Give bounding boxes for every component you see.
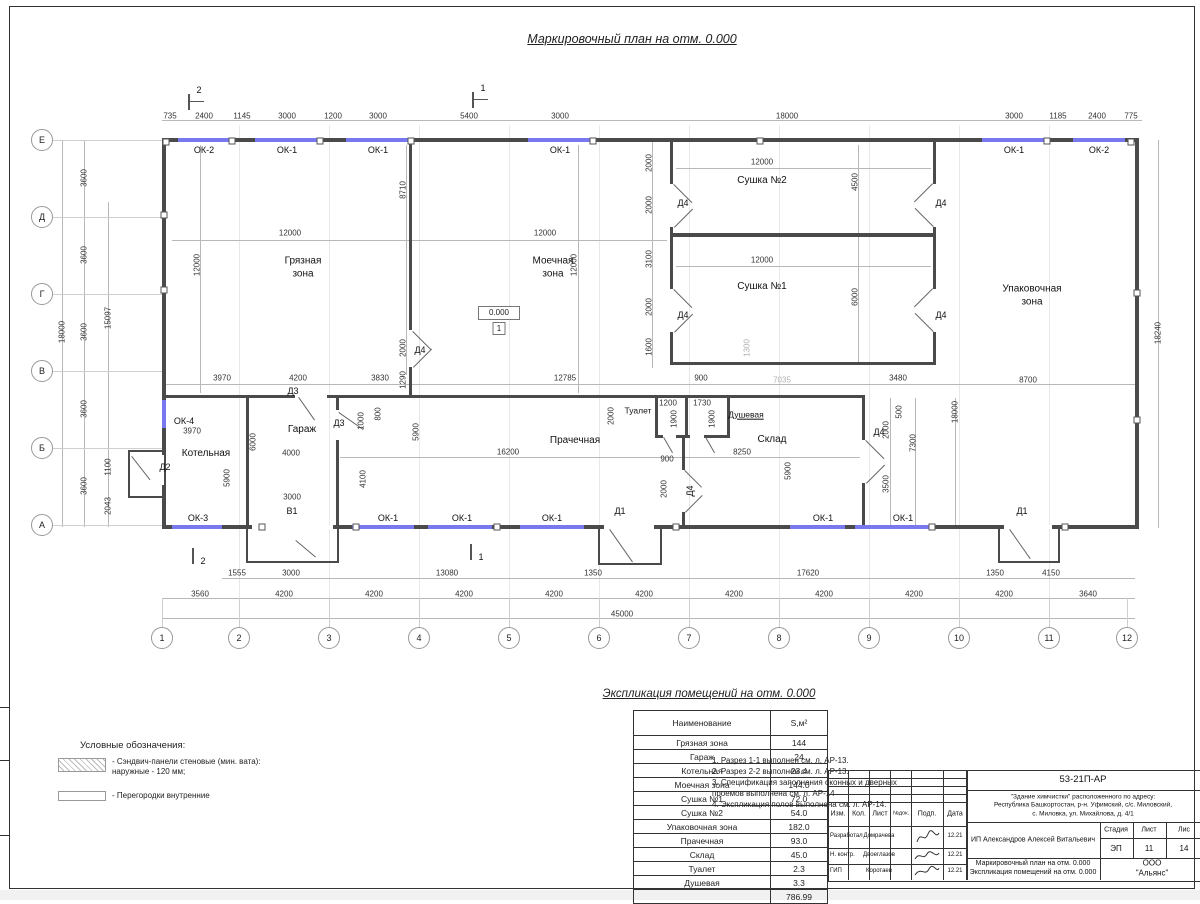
total-area: 786.99 (771, 890, 828, 904)
section-mark-2: 2 (196, 85, 201, 95)
wall-corridor (682, 512, 685, 525)
dim-label: 12000 (534, 229, 556, 238)
dim-label: 4000 (282, 449, 300, 458)
table-total-row: 786.99 (634, 890, 828, 904)
axis-tick (1127, 598, 1128, 628)
axis-tick (599, 598, 600, 628)
wall-interior (409, 367, 412, 395)
wall-interior (933, 142, 936, 184)
door-label: Д1 (1016, 506, 1027, 516)
window-label: ОК-4 (174, 416, 194, 426)
axis-bubble-bottom: 9 (858, 627, 880, 649)
stamp-line (828, 864, 967, 865)
wall-outer-right (1135, 138, 1139, 529)
axis-tick (959, 598, 960, 628)
stamp-name-gip: Коротаев (866, 868, 892, 876)
frame-left-divider (0, 707, 9, 708)
dim-label: 1900 (670, 410, 679, 428)
table-row: Прачечная93.0 (634, 834, 828, 848)
room-area: 93.0 (771, 834, 828, 848)
stamp-col-data: Дата (947, 809, 963, 818)
wall-garage (336, 440, 339, 525)
dim-line-bottom1 (222, 578, 1135, 579)
dim-label: 3000 (369, 112, 387, 121)
door-label: Д1 (614, 506, 625, 516)
signature (913, 864, 941, 878)
dim-line-inner (676, 168, 931, 169)
axis-tick (162, 598, 163, 628)
window-label: ОК-1 (813, 513, 833, 523)
stamp-name-ncontrol: Двоеглазов (863, 852, 895, 860)
dim-label: 1145 (233, 112, 250, 121)
axis-tick (689, 598, 690, 628)
door-label: Д4 (677, 198, 688, 208)
dim-label: 45000 (611, 610, 633, 619)
table-row: Грязная зона144 (634, 736, 828, 750)
axis-tick (1049, 598, 1050, 628)
dim-label: 3500 (882, 475, 891, 493)
dim-line-left3 (108, 202, 109, 527)
column-marker (229, 138, 236, 145)
axis-bubble-bottom: 12 (1116, 627, 1138, 649)
window-ok1 (520, 525, 584, 529)
signature (915, 828, 941, 846)
column-marker (161, 212, 168, 219)
dim-label: 12000 (279, 229, 301, 238)
window-ok1 (855, 525, 930, 529)
door-label: Д4 (935, 310, 946, 320)
window-label: ОК-1 (368, 145, 388, 155)
stamp-line (966, 790, 1200, 791)
section-mark-line (470, 544, 472, 560)
floor-type-mark: 1 (493, 322, 506, 335)
window-ok2 (1073, 138, 1125, 142)
dim-label: 7300 (909, 434, 918, 452)
stamp-date-gip: 12.21 (947, 868, 962, 876)
stage-label: Стадия (1104, 825, 1128, 834)
dim-label: 1600 (645, 338, 654, 356)
signature (913, 850, 941, 862)
axis-bubble-left: Е (31, 129, 53, 151)
axis-tick (779, 598, 780, 628)
dim-label: 3560 (191, 590, 209, 599)
dim-line-inner (340, 457, 860, 458)
window-label: ОК-1 (277, 145, 297, 155)
dim-label: 900 (660, 455, 673, 464)
column-marker (590, 138, 597, 145)
room-label-washing-zone: Моечная зона (533, 256, 574, 281)
room-name: Грязная зона (634, 736, 771, 750)
axis-tick (329, 598, 330, 628)
axis-bubble-bottom: 11 (1038, 627, 1060, 649)
door-label: Д4 (685, 485, 695, 496)
axis-bubble-bottom: 8 (768, 627, 790, 649)
stamp-col-podp: Подп. (918, 809, 937, 818)
room-label-drying1: Сушка №1 (737, 281, 786, 294)
dim-label: 18000 (776, 112, 798, 121)
garage-porch (246, 529, 339, 563)
dim-label: 3970 (213, 374, 231, 383)
dim-label: 5900 (412, 423, 421, 441)
section-mark-line (192, 548, 194, 564)
wall-interior (670, 362, 936, 365)
axis-bubble-left: В (31, 360, 53, 382)
dim-label: 12785 (554, 374, 576, 383)
dim-label: 775 (1124, 112, 1137, 121)
legend-item-partition: - Перегородки внутренние (112, 791, 342, 801)
dim-label: 500 (895, 405, 904, 418)
frame-left-divider (0, 835, 9, 836)
dim-label: 13080 (436, 569, 458, 578)
column-marker (757, 138, 764, 145)
axis-bubble-left: А (31, 514, 53, 536)
stage-value: ЭП (1110, 844, 1122, 854)
stamp-role-ncontrol: Н. контр. (830, 852, 855, 860)
dim-label: 4200 (905, 590, 923, 599)
drawing-content: Маркировочный план на отм. 0.000 Эксплик… (968, 859, 1098, 877)
wall-toilet (685, 398, 688, 438)
table-header-area: S,м² (771, 711, 828, 736)
stamp-role-developer: Разработал (830, 833, 863, 841)
dim-label: 7035 (773, 376, 791, 385)
window-ok1 (352, 525, 414, 529)
window-ok1 (790, 525, 845, 529)
stamp-name-developer: Домрачева (863, 833, 894, 841)
section-mark-line (472, 99, 488, 100)
section-mark-line (472, 92, 474, 108)
dim-label: 6000 (249, 433, 258, 451)
window-label: ОК-3 (188, 513, 208, 523)
dim-line-bottom3 (162, 618, 1135, 619)
dim-label: 2000 (645, 196, 654, 214)
axis-bubble-bottom: 5 (498, 627, 520, 649)
dim-label: 3640 (1079, 590, 1097, 599)
dim-label: 2000 (660, 480, 669, 498)
stamp-role-gip: ГИП (830, 868, 842, 876)
dim-label: 3000 (1005, 112, 1023, 121)
dim-label: 2400 (195, 112, 213, 121)
wall-interior (670, 332, 673, 364)
dim-label: 1350 (986, 569, 1004, 578)
wall-interior (327, 395, 862, 398)
dim-label: 4200 (815, 590, 833, 599)
room-label-shower: Душевая (728, 410, 764, 421)
stamp-line (1100, 838, 1200, 839)
column-marker (163, 139, 170, 146)
column-marker (161, 287, 168, 294)
dim-label: 3600 (80, 477, 89, 495)
dim-label: 3600 (80, 246, 89, 264)
dim-line-top (162, 120, 1142, 121)
room-label-toilet: Туалет (625, 406, 652, 417)
frame-left-divider (0, 760, 9, 761)
column-marker (1134, 417, 1141, 424)
legend-swatch-partition (58, 791, 106, 801)
room-label-storage: Склад (758, 434, 787, 447)
table-header-name: Наименование (634, 711, 771, 736)
sheets-value: 14 (1180, 844, 1189, 854)
stamp-line (828, 826, 967, 827)
dim-label: 2000 (645, 298, 654, 316)
room-label-laundry: Прачечная (550, 435, 600, 448)
legend-swatch-sandwich-panel (58, 758, 106, 772)
dim-label: 1300 (743, 339, 752, 357)
room-label-packing-zone: Упаковочная зона (1002, 284, 1061, 309)
window-ok3 (172, 525, 222, 529)
room-area: 45.0 (771, 848, 828, 862)
window-label: ОК-1 (893, 513, 913, 523)
client-name: ИП Александров Алексей Витальевич (971, 835, 1096, 844)
section-mark-1: 1 (480, 83, 485, 93)
dim-label: 4200 (995, 590, 1013, 599)
stamp-line (1133, 822, 1134, 858)
wall-toilet (655, 398, 658, 438)
stamp-col-ndok: №док. (893, 810, 909, 817)
gate-label: В1 (286, 506, 297, 516)
section-mark-line (188, 94, 190, 110)
room-area: 144 (771, 736, 828, 750)
total-empty-cell (634, 890, 771, 904)
dim-label: 1200 (659, 399, 677, 408)
dim-label: 4150 (1042, 569, 1060, 578)
column-marker (1044, 138, 1051, 145)
dim-label: 4100 (359, 470, 368, 488)
dim-line-inner (172, 240, 667, 241)
room-name: Туалет (634, 862, 771, 876)
dim-label: 4200 (455, 590, 473, 599)
dim-label: 12000 (193, 254, 202, 276)
stamp-col-list: Лист (872, 809, 887, 818)
stamp-line (828, 848, 967, 849)
room-label-garage: Гараж (288, 424, 316, 437)
stamp-date-ncontrol: 12.21 (947, 852, 962, 860)
page-title: Маркировочный план на отм. 0.000 (527, 32, 736, 46)
room-name: Душевая (634, 876, 771, 890)
dim-label: 16200 (497, 448, 519, 457)
organization-name: ООО "Альянс" (1128, 859, 1176, 880)
axis-tick (419, 598, 420, 628)
dim-label: 735 (163, 112, 176, 121)
dim-label: 3000 (278, 112, 296, 121)
wall-interior (933, 332, 936, 364)
column-marker (929, 524, 936, 531)
dim-label: 3600 (80, 169, 89, 187)
doc-number: 53-21П-АР (1060, 774, 1107, 786)
axis-tick (509, 598, 510, 628)
room-label-dirty-zone: Грязная зона (285, 256, 322, 281)
stamp-col-izm: Изм. (831, 809, 846, 818)
dim-label: 4200 (725, 590, 743, 599)
door-label: Д2 (159, 462, 170, 472)
window-ok1 (428, 525, 492, 529)
table-row: Упаковочная зона182.0 (634, 820, 828, 834)
axis-bubble-left: Д (31, 206, 53, 228)
column-marker (317, 138, 324, 145)
window-label: ОК-1 (378, 513, 398, 523)
wall-garage (336, 398, 339, 410)
window-label: ОК-1 (550, 145, 570, 155)
sheets-label: Лис (1178, 825, 1190, 834)
axis-line (52, 371, 162, 372)
door-label: Д4 (935, 198, 946, 208)
stamp-date-developer: 12.21 (947, 833, 962, 841)
column-marker (259, 524, 266, 531)
stamp-line (828, 778, 967, 779)
wall-shower (704, 435, 730, 438)
axis-bubble-bottom: 7 (678, 627, 700, 649)
dim-label: 800 (374, 407, 383, 420)
table-row: Туалет2.3 (634, 862, 828, 876)
dim-label: 18000 (951, 401, 960, 423)
section-mark-1: 1 (478, 552, 483, 562)
room-name: Склад (634, 848, 771, 862)
stamp-line (828, 786, 967, 787)
dim-label: 17620 (797, 569, 819, 578)
dim-label: 5900 (223, 469, 232, 487)
stamp-line (1166, 822, 1167, 858)
axis-bubble-bottom: 3 (318, 627, 340, 649)
dim-line-inner (915, 398, 916, 525)
window-label: ОК-1 (542, 513, 562, 523)
dim-label: 6000 (851, 288, 860, 306)
dim-label: 5400 (460, 112, 478, 121)
section-mark-2: 2 (200, 556, 205, 566)
dim-label: 3830 (371, 374, 389, 383)
window-ok2 (178, 138, 230, 142)
legend-item-sandwich: - Сэндвич-панели стеновые (мин. вата): н… (112, 757, 342, 778)
sheet-label: Лист (1141, 825, 1156, 834)
note-1: 1. Разрез 1-1 выполнен см. л. АР-13. (712, 756, 982, 767)
room-area: 2.3 (771, 862, 828, 876)
dim-label: 3000 (282, 569, 300, 578)
dim-label: 1200 (324, 112, 342, 121)
dim-label: 3600 (80, 400, 89, 418)
dim-label: 5900 (784, 462, 793, 480)
stamp-line (966, 822, 1200, 823)
dim-line-inner (890, 398, 891, 525)
wall-garage (246, 398, 249, 525)
column-marker (1134, 290, 1141, 297)
room-label-boiler: Котельная (182, 448, 230, 461)
wall-toilet (655, 435, 663, 438)
window-label: ОК-2 (194, 145, 214, 155)
dim-label: 4500 (851, 173, 860, 191)
axis-line (52, 140, 162, 141)
stamp-line (828, 802, 967, 803)
axis-line (52, 525, 162, 526)
window-ok4 (162, 400, 166, 428)
dim-label: 8250 (733, 448, 751, 457)
axis-tick (869, 598, 870, 628)
stamp-line (1100, 822, 1101, 880)
dim-label: 12000 (751, 158, 773, 167)
legend-title: Условные обозначения: (80, 740, 185, 751)
column-marker (408, 138, 415, 145)
wall-interior (162, 395, 295, 398)
door-label: Д4 (414, 345, 425, 355)
dim-label: 1900 (708, 410, 717, 428)
column-marker (353, 524, 360, 531)
window-ok1 (982, 138, 1047, 142)
elevation-mark: 0.000 (478, 306, 520, 320)
dim-label: 3000 (283, 493, 301, 502)
window-label: ОК-1 (452, 513, 472, 523)
dim-label: 1555 (228, 569, 246, 578)
explication-title: Экспликация помещений на отм. 0.000 (603, 688, 816, 700)
dim-label: 2000 (645, 154, 654, 172)
axis-bubble-left: Г (31, 283, 53, 305)
axis-bubble-bottom: 10 (948, 627, 970, 649)
room-label-drying2: Сушка №2 (737, 175, 786, 188)
window-ok1 (528, 138, 593, 142)
dim-label: 1000 (357, 412, 366, 430)
axis-line (52, 217, 162, 218)
room-area: 182.0 (771, 820, 828, 834)
dim-label: 2000 (607, 407, 616, 425)
stamp-line (828, 794, 967, 795)
dim-label: 3100 (645, 250, 654, 268)
wall-interior (670, 233, 936, 237)
dim-label: 15097 (104, 307, 113, 329)
dim-label: 4200 (545, 590, 563, 599)
section-mark-line (188, 101, 204, 102)
project-address: "Здание химчистки" расположенного по адр… (968, 793, 1198, 818)
dim-label: 1290 (399, 371, 408, 389)
column-marker (1062, 524, 1069, 531)
dim-label: 18000 (58, 321, 67, 343)
table-row: Склад45.0 (634, 848, 828, 862)
door-label: Д4 (873, 427, 884, 437)
window-ok1 (255, 138, 320, 142)
table-row: Душевая3.3 (634, 876, 828, 890)
room-name: Упаковочная зона (634, 820, 771, 834)
dim-line-inner (676, 266, 931, 267)
sheet-value: 11 (1145, 844, 1153, 854)
dim-label: 3970 (183, 427, 201, 436)
window-label: ОК-2 (1089, 145, 1109, 155)
axis-tick (239, 598, 240, 628)
column-marker (494, 524, 501, 531)
wall-storage (862, 395, 865, 440)
axis-line (52, 294, 162, 295)
dim-label: 4200 (289, 374, 307, 383)
axis-bubble-bottom: 6 (588, 627, 610, 649)
axis-bubble-left: Б (31, 437, 53, 459)
dim-label: 3600 (80, 323, 89, 341)
dim-label: 3480 (889, 374, 907, 383)
wall-corridor (682, 438, 685, 470)
dim-label: 4200 (275, 590, 293, 599)
door-label: Д3 (333, 418, 344, 428)
dim-label: 8710 (399, 181, 408, 199)
dim-label: 900 (694, 374, 707, 383)
dim-label: 2000 (399, 339, 408, 357)
dim-label: 2400 (1088, 112, 1106, 121)
window-label: ОК-1 (1004, 145, 1024, 155)
column-marker (1128, 139, 1135, 146)
dim-label: 3000 (551, 112, 569, 121)
column-marker (673, 524, 680, 531)
dim-label: 18240 (1154, 322, 1163, 344)
window-ok1 (346, 138, 411, 142)
room-name: Прачечная (634, 834, 771, 848)
dim-label: 1185 (1049, 112, 1066, 121)
axis-bubble-bottom: 4 (408, 627, 430, 649)
door-label: Д4 (677, 310, 688, 320)
drawing-sheet: { "sheet": {"title": "Маркировочный план… (0, 0, 1200, 900)
axis-bubble-bottom: 1 (151, 627, 173, 649)
room-area: 3.3 (771, 876, 828, 890)
